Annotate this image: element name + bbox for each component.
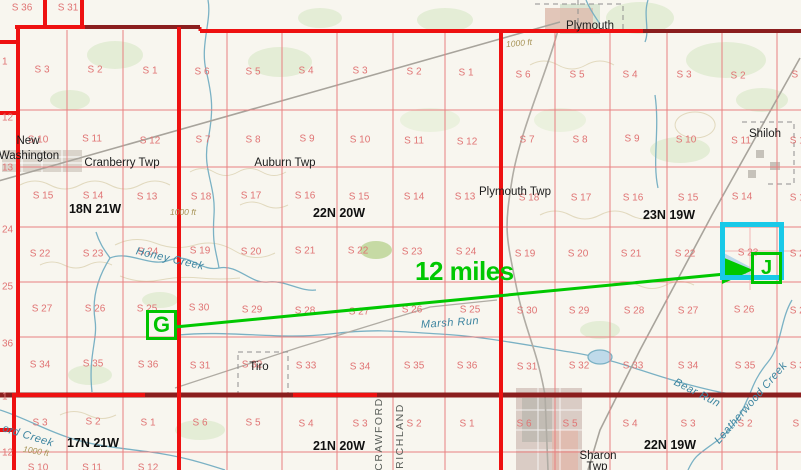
end-marker-label: J bbox=[761, 257, 772, 280]
measurement-overlay bbox=[0, 0, 801, 470]
topo-survey-map[interactable]: S 36S 31S 3S 2S 1S 10S 11S 12S 15S 14S 1… bbox=[0, 0, 801, 470]
start-marker-g: G bbox=[146, 310, 177, 340]
distance-label: 12 miles bbox=[415, 256, 514, 287]
start-marker-label: G bbox=[153, 312, 170, 338]
end-marker-j: J bbox=[751, 252, 782, 284]
